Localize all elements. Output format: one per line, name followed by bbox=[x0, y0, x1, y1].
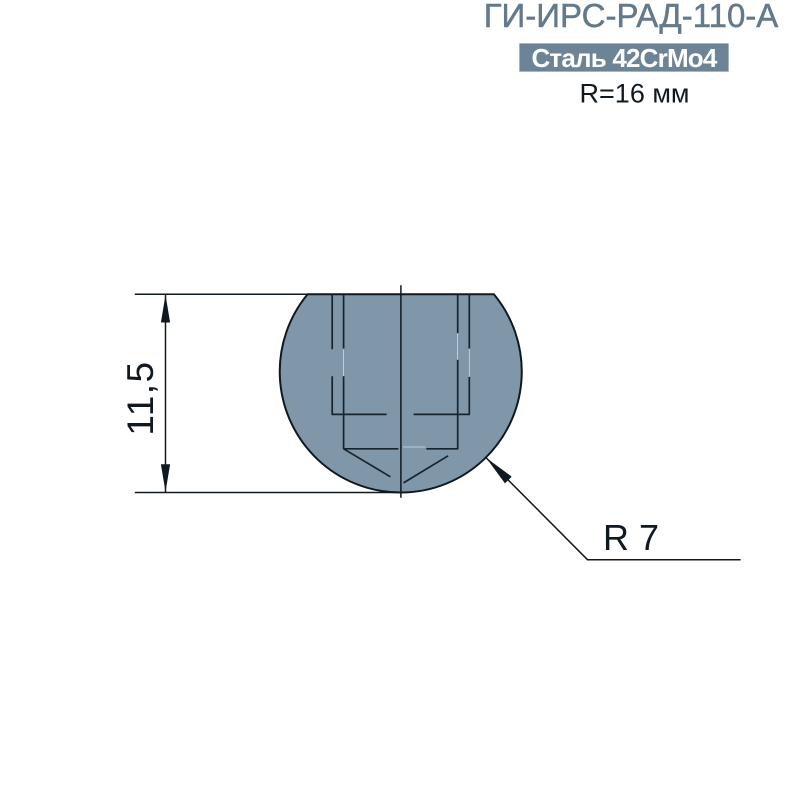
svg-text:R 7: R 7 bbox=[603, 517, 659, 558]
svg-text:11,5: 11,5 bbox=[120, 360, 161, 435]
svg-text:Сталь 42CrMo4: Сталь 42CrMo4 bbox=[531, 43, 717, 73]
svg-text:R=16 мм: R=16 мм bbox=[580, 79, 690, 109]
svg-text:ГИ-ИРС-РАД-110-А: ГИ-ИРС-РАД-110-А bbox=[484, 0, 779, 34]
